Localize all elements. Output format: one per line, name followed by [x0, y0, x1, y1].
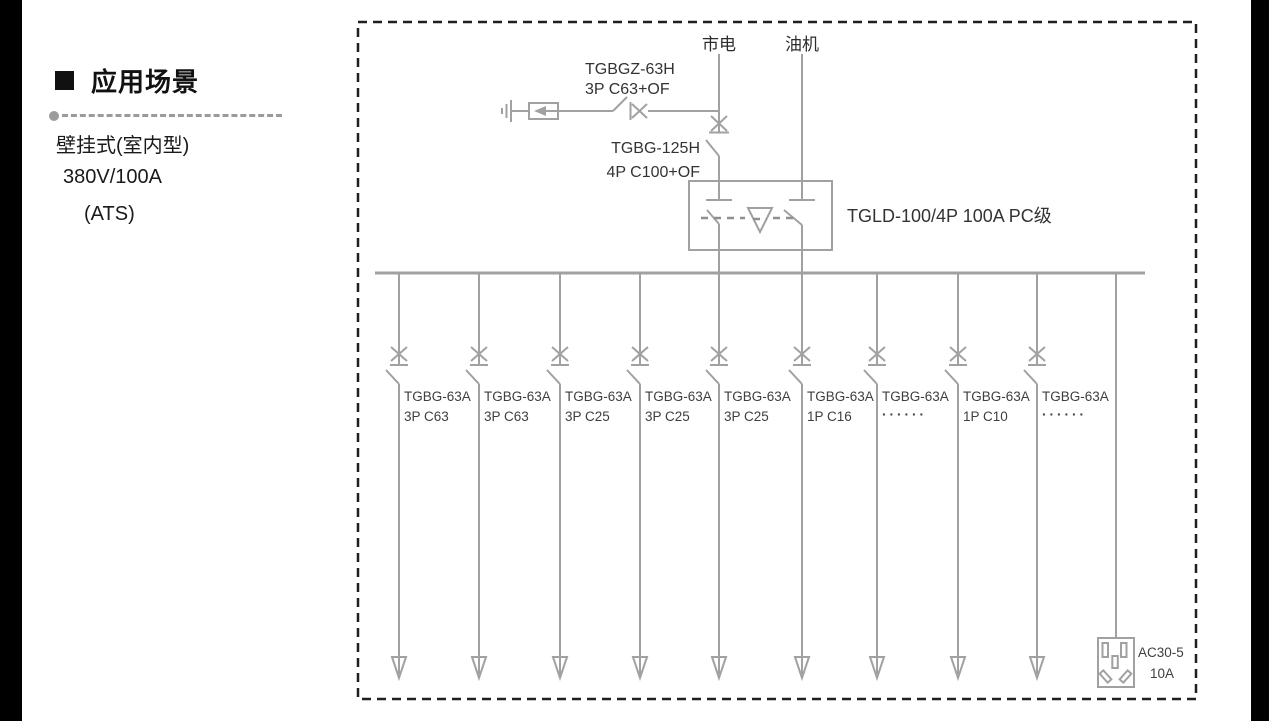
spd-spec-label: 3P C63+OF	[585, 81, 670, 98]
generator-label: 油机	[785, 35, 819, 54]
socket-model-label: AC30-5	[1138, 645, 1184, 660]
ats-switch: TGLD-100/4P 100A PC级	[689, 181, 1052, 273]
branch-1-spec: 3P C63	[404, 409, 449, 424]
branch-6-model: TGBG-63A	[807, 389, 874, 404]
branch-2-model: TGBG-63A	[484, 389, 551, 404]
branch-9-model: TGBG-63A	[1042, 389, 1109, 404]
branch-5-model: TGBG-63A	[724, 389, 791, 404]
diagram-dashed-border	[358, 22, 1196, 699]
branch-2-spec: 3P C63	[484, 409, 529, 424]
branch-7-model: TGBG-63A	[882, 389, 949, 404]
ats-label: TGLD-100/4P 100A PC级	[847, 206, 1052, 226]
ground-icon	[502, 100, 511, 122]
branch-3-spec: 3P C25	[565, 409, 610, 424]
branch-1: TGBG-63A 3P C63	[386, 273, 471, 678]
single-line-diagram: 市电 油机 TGBGZ-63H 3P C63+OF	[0, 0, 1269, 721]
interlock-icon	[748, 208, 772, 232]
branch-3-model: TGBG-63A	[565, 389, 632, 404]
branch-2: TGBG-63A 3P C63	[466, 273, 551, 678]
branch-6-spec: 1P C16	[807, 409, 852, 424]
main-breaker-spec-label: 4P C100+OF	[606, 164, 700, 181]
spd-model-label: TGBGZ-63H	[585, 61, 675, 78]
branch-1-model: TGBG-63A	[404, 389, 471, 404]
branch-8-model: TGBG-63A	[963, 389, 1030, 404]
branch-5-spec: 3P C25	[724, 409, 769, 424]
branch-4: TGBG-63A 3P C25	[627, 273, 712, 678]
branch-9: TGBG-63A ······	[1024, 273, 1109, 678]
branch-8: TGBG-63A 1P C10	[945, 273, 1030, 678]
branch-4-model: TGBG-63A	[645, 389, 712, 404]
branch-3: TGBG-63A 3P C25	[547, 273, 632, 678]
branch-8-spec: 1P C10	[963, 409, 1008, 424]
branch-7-spec: ······	[882, 407, 927, 422]
mains-label: 市电	[702, 35, 736, 54]
spd-breaker-icon	[613, 97, 647, 120]
main-breaker-icon	[706, 116, 729, 156]
branch-4-spec: 3P C25	[645, 409, 690, 424]
spd-branch: TGBGZ-63H 3P C63+OF	[502, 61, 719, 122]
main-breaker-model-label: TGBG-125H	[611, 140, 700, 157]
socket-icon	[1098, 638, 1134, 687]
branch-7: TGBG-63A ······	[864, 273, 949, 678]
spd-box-icon	[529, 103, 558, 119]
branch-6: TGBG-63A 1P C16	[789, 273, 874, 678]
socket-rating-label: 10A	[1150, 666, 1174, 681]
branch-5: TGBG-63A 3P C25	[706, 273, 791, 678]
branch-9-spec: ······	[1042, 407, 1087, 422]
socket-branch: AC30-5 10A	[1098, 273, 1184, 687]
